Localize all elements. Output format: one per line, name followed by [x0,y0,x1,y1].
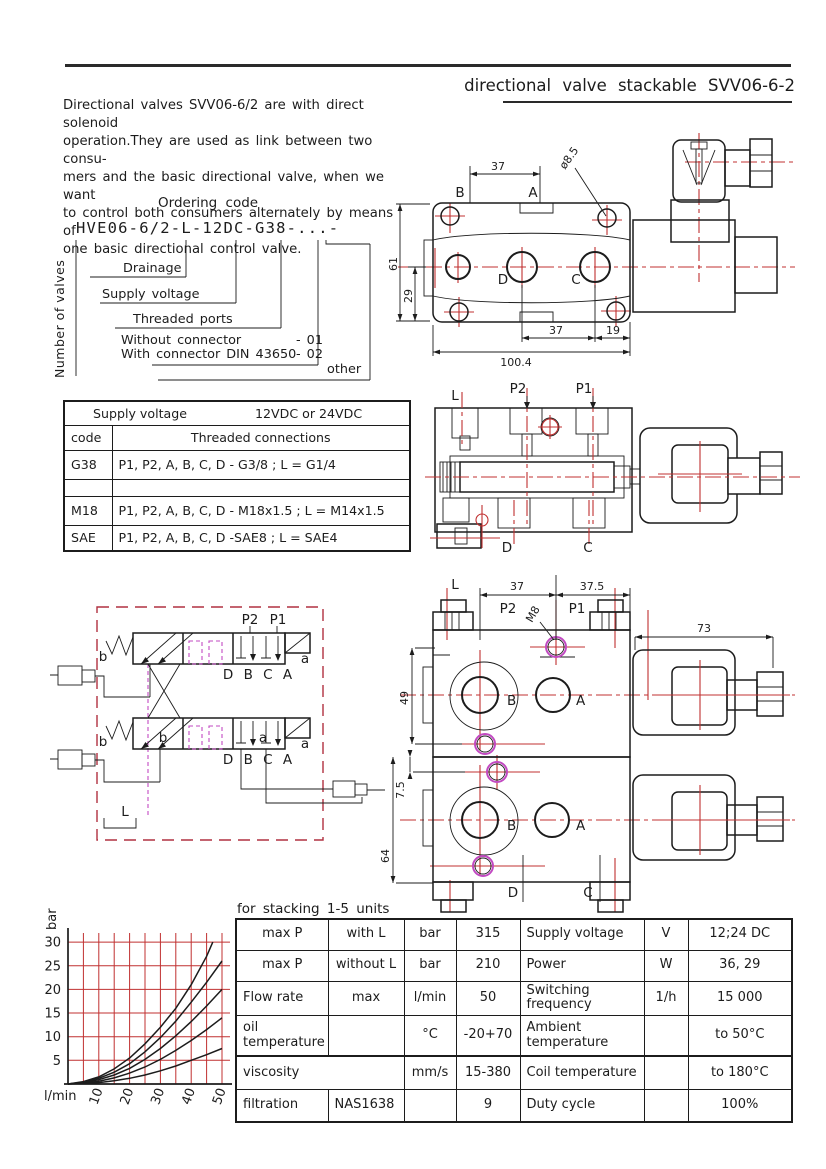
conn-row-desc: P1, P2, A, B, C, D -SAE8 ; L = SAE4 [112,525,410,551]
ordering-label-with-connector: With connector DIN 43650 [121,347,296,362]
section-label-p2: P2 [510,381,527,397]
spec-cell [644,1090,688,1122]
spec-cell: V [644,919,688,950]
chart-x-tick: 50 [210,1086,230,1107]
ordering-label-drainage: Drainage [123,261,181,276]
spec-cell: 1/h [644,981,688,1016]
dim-37-top: 37 [491,160,505,173]
stack-label-d: D [508,885,518,901]
chart-x-tick: 30 [148,1086,168,1107]
chart-y-tick: 15 [44,1007,61,1022]
chart-x-tick: 40 [179,1086,199,1107]
spec-cell: 50 [456,981,520,1016]
chart-x-tick: 20 [118,1086,138,1107]
spec-cell: oil temperature [236,1016,328,1056]
spec-row: max P with L bar 315 Supply voltage V 12… [236,919,792,950]
port-label-d: D [498,272,508,288]
flow-chart: bar l/min 510152025301020304050 [42,896,242,1141]
spec-table: max P with L bar 315 Supply voltage V 12… [235,918,793,1123]
dim-37-bottom: 37 [549,324,563,337]
dim-m8: M8 [523,604,543,625]
port-label-b: B [455,185,464,201]
spec-cell [644,1016,688,1056]
connections-header: Supply voltage 12VDC or 24VDC [64,401,410,425]
spec-cell: -20+70 [456,1016,520,1056]
spec-cell: Supply voltage [520,919,644,950]
cross-lines [148,664,180,718]
schematic-a2: a [301,736,309,752]
title-underline [503,101,792,103]
spec-row: max P without L bar 210 Power W 36, 29 [236,950,792,981]
conn-row-desc: P1, P2, A, B, C, D - M18x1.5 ; L = M14x1… [112,496,410,525]
spec-cell: max P [236,919,328,950]
section-label-l: L [451,388,459,404]
dim-73: 73 [697,622,711,635]
spec-cell: 315 [456,919,520,950]
dim-64: 64 [379,849,392,863]
spec-cell: max P [236,950,328,981]
spec-cell: 210 [456,950,520,981]
spec-cell: °C [404,1016,456,1056]
ordering-label-other: other [327,362,361,377]
stack-label-p2: P2 [500,601,517,617]
spec-cell: Ambient temperature [520,1016,644,1056]
dim-49: 49 [398,691,411,705]
top-view-drawing: 37 ø8.5 61 29 37 19 100.4 B A D C [390,128,826,378]
chart-ylabel: bar [45,908,60,930]
spec-row: Flow rate max l/min 50 Switching frequen… [236,981,792,1016]
conn-row-desc [112,479,410,496]
ordering-label-threaded: Threaded ports [133,312,233,327]
connections-table-wrap: Supply voltage 12VDC or 24VDC code Threa… [63,400,411,552]
datasheet-page: directional valve stackable SVV06-6-2 Di… [0,0,826,1169]
top-rule [65,64,791,67]
supply-voltage-label: Supply voltage [93,406,187,421]
spec-cell: 15-380 [456,1056,520,1090]
dim-61: 61 [387,257,400,271]
spec-cell: 36, 29 [688,950,792,981]
solenoid-outline [633,139,777,312]
spec-cell: W [644,950,688,981]
stack-dimensions: 37 37.5 73 49 7.5 64 M8 L P2 P1 B A B A … [379,575,773,901]
section-solenoid [640,428,782,523]
spec-cell: NAS1638 [328,1090,404,1122]
chart-x-tick: 10 [87,1086,107,1107]
spec-cell: Flow rate [236,981,328,1016]
spec-cell: Power [520,950,644,981]
spec-caption: for stacking 1-5 units [237,901,389,917]
chart-y-tick: 5 [53,1054,61,1069]
dim-29: 29 [402,289,415,303]
chart-y-tick: 10 [44,1030,61,1045]
dim-37-5: 37.5 [580,580,605,593]
spec-cell: bar [404,950,456,981]
stack-solenoid-2 [633,775,783,860]
chart-y-tick: 30 [44,936,61,951]
col-header-code: code [64,425,112,450]
ordering-label-without-connector: Without connector [121,333,241,348]
conn-row-code: SAE [64,525,112,551]
spec-cell [328,1016,404,1056]
page-title: directional valve stackable SVV06-6-2 [440,76,795,95]
port-label-a: A [528,185,538,201]
chart-y-tick: 20 [44,983,61,998]
spec-cell: l/min [404,981,456,1016]
spec-cell: filtration [236,1090,328,1122]
stack-view-drawing: 37 37.5 73 49 7.5 64 M8 L P2 P1 B A B A … [390,568,826,918]
ordering-code-01: - 01 [296,333,323,348]
dim-19: 19 [606,324,620,337]
stack-label-c: C [583,885,592,901]
spec-cell: to 180°C [688,1056,792,1090]
spec-cell: viscosity [236,1056,404,1090]
ordering-code-02: - 02 [296,347,323,362]
chart-xlabel: l/min [44,1089,77,1104]
spec-row: oil temperature °C -20+70 Ambient temper… [236,1016,792,1056]
schematic-b2-in: b [159,730,168,746]
section-view-drawing: L P2 P1 D C [420,375,826,575]
spec-row: viscosity mm/s 15-380 Coil temperature t… [236,1056,792,1090]
stack-label-p1: P1 [569,601,586,617]
schematic-ports-1: D B C A [223,667,295,683]
ordering-label-supply: Supply voltage [102,287,200,302]
top-view-dimensions: 37 ø8.5 61 29 37 19 100.4 B A D C [387,144,630,369]
spec-cell: 100% [688,1090,792,1122]
schematic-p1: P1 [270,612,287,628]
conn-row-code [64,479,112,496]
dim-7-5: 7.5 [394,781,407,799]
supply-voltage-value: 12VDC or 24VDC [255,406,362,421]
spec-table-wrap: max P with L bar 315 Supply voltage V 12… [235,918,793,1123]
stack-port-b2: B [507,818,516,834]
connections-table: Supply voltage 12VDC or 24VDC code Threa… [63,400,411,552]
conn-row-code: G38 [64,450,112,479]
schematic-a1: a [301,651,309,667]
chart-y-tick: 25 [44,959,61,974]
spec-row: filtration NAS1638 9 Duty cycle 100% [236,1090,792,1122]
dim-dia-8-5: ø8.5 [557,144,582,171]
section-label-d: D [502,540,512,556]
dim-37: 37 [510,580,524,593]
spec-cell: Switching frequency [520,981,644,1016]
section-body [435,408,632,548]
spec-cell: 9 [456,1090,520,1122]
schematic-l: L [121,804,129,820]
conn-row-code: M18 [64,496,112,525]
schematic-p2: P2 [242,612,259,628]
valve-body-outline [424,203,630,322]
schematic-b2: b [99,734,108,750]
spec-cell: 15 000 [688,981,792,1016]
stack-port-a1: A [576,693,586,709]
dim-100-4: 100.4 [500,356,532,369]
hydraulic-schematic: b a P2 P1 D B C A b b a a D B C A [55,588,390,860]
port-label-c: C [571,272,580,288]
section-label-c: C [583,540,592,556]
valve-symbol-2 [106,718,310,749]
spec-cell: 12;24 DC [688,919,792,950]
stack-port-b1: B [507,693,516,709]
conn-row-desc: P1, P2, A, B, C, D - G3/8 ; L = G1/4 [112,450,410,479]
stack-solenoid-1 [633,650,783,735]
spec-cell [404,1090,456,1122]
col-header-desc: Threaded connections [112,425,410,450]
spec-cell: to 50°C [688,1016,792,1056]
stack-bodies [423,600,630,912]
schematic-a2-in: a [259,730,267,746]
spec-cell: Coil temperature [520,1056,644,1090]
spec-cell: Duty cycle [520,1090,644,1122]
schematic-ports-2: D B C A [223,752,295,768]
spec-cell [644,1056,688,1090]
spec-cell: with L [328,919,404,950]
valve-symbol-1 [106,626,310,664]
stack-port-a2: A [576,818,586,834]
section-label-p1: P1 [576,381,593,397]
stack-label-l: L [451,577,459,593]
spec-cell: without L [328,950,404,981]
spec-cell: mm/s [404,1056,456,1090]
spec-cell: max [328,981,404,1016]
schematic-b1: b [99,649,108,665]
chart-grid [68,933,230,1084]
spec-cell: bar [404,919,456,950]
